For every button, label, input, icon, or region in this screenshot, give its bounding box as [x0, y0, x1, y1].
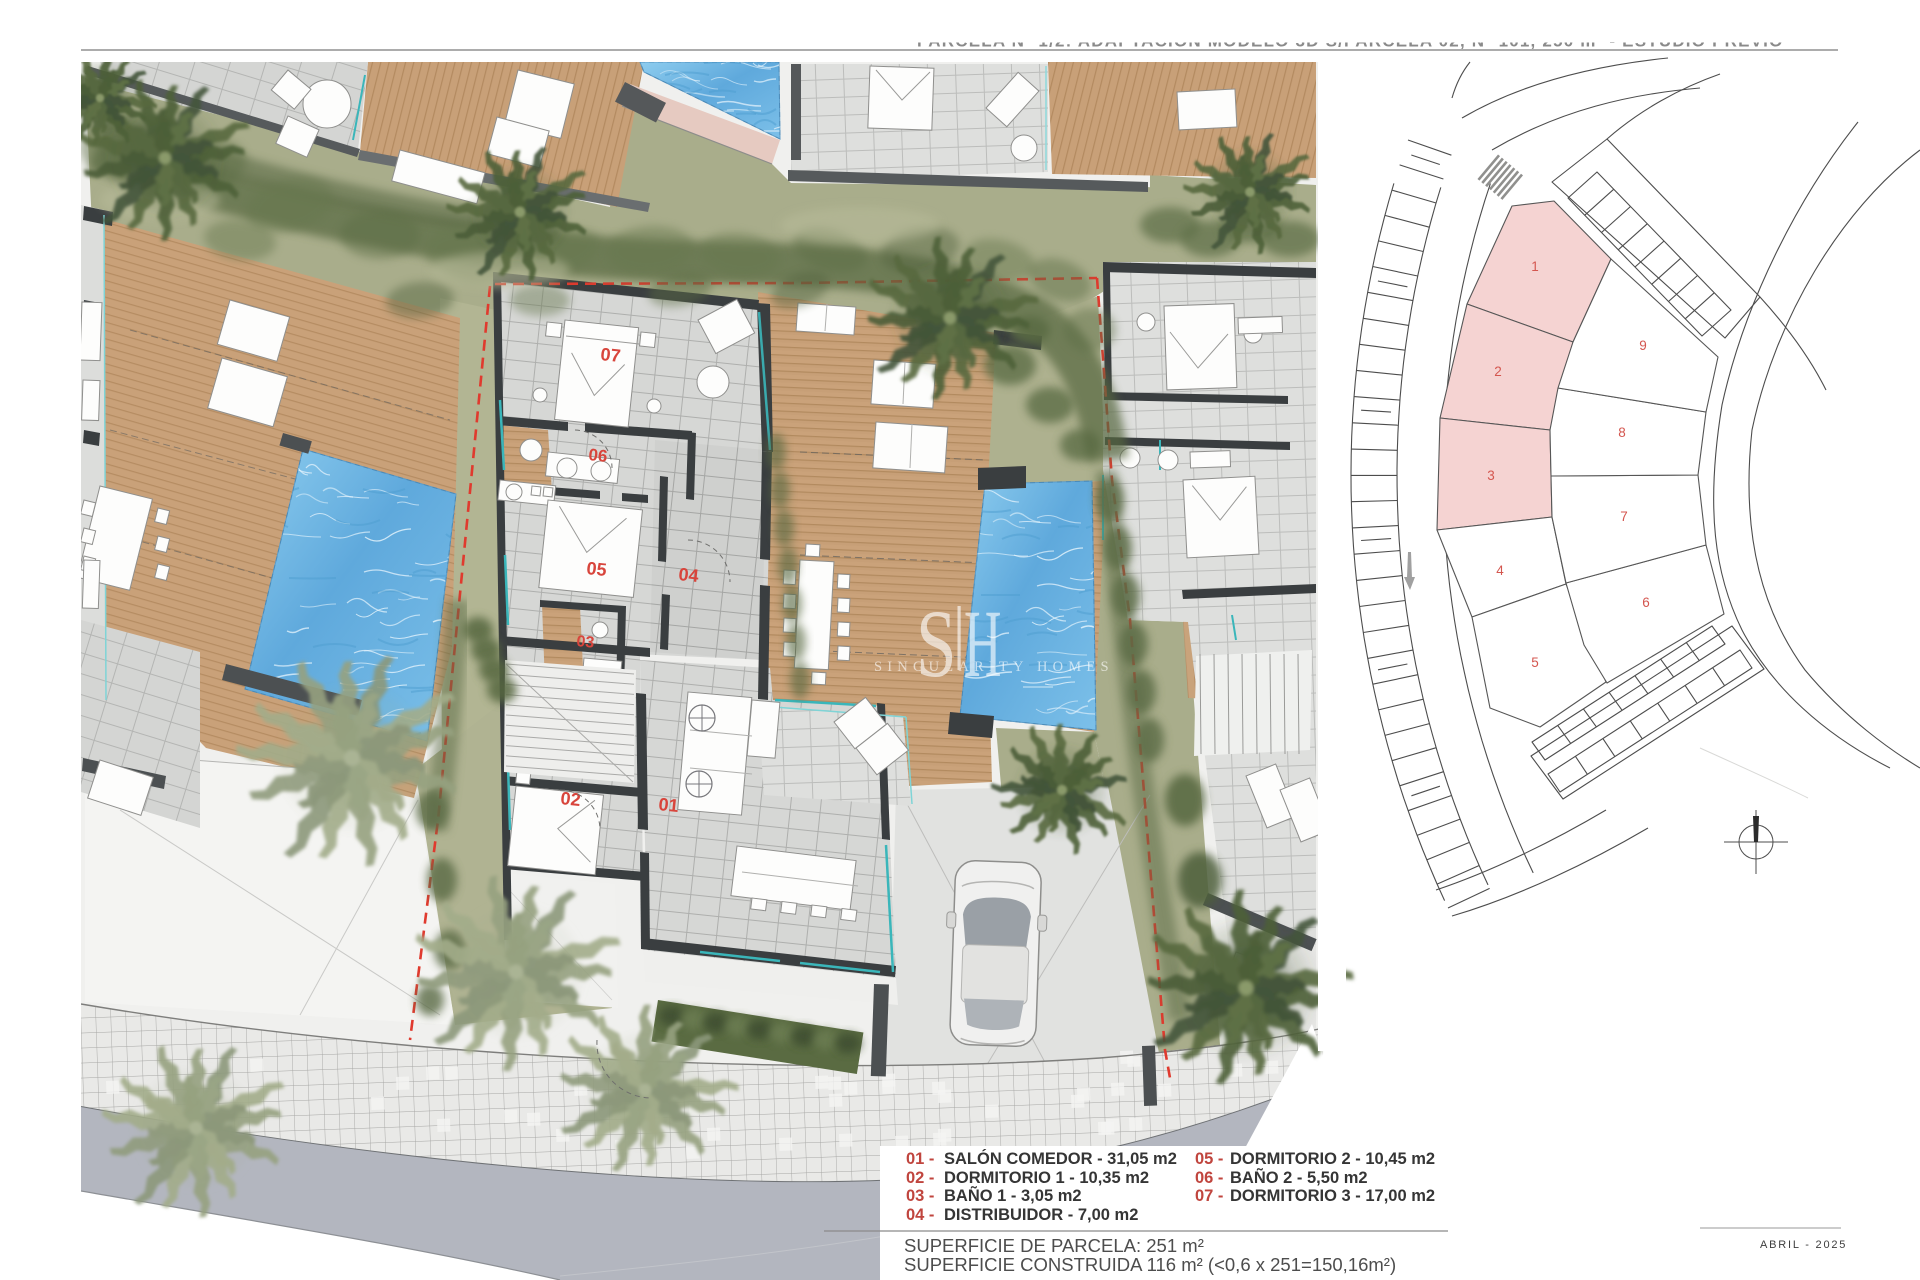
svg-text:3: 3	[1487, 468, 1495, 483]
svg-text:5: 5	[1531, 655, 1539, 670]
svg-text:04: 04	[678, 564, 700, 586]
svg-text:9: 9	[1639, 338, 1647, 353]
svg-text:DORMITORIO 2 - 10,45 m2: DORMITORIO 2 - 10,45 m2	[1230, 1150, 1435, 1168]
svg-text:06: 06	[588, 445, 609, 466]
svg-text:04 -: 04 -	[906, 1206, 934, 1224]
svg-text:1: 1	[1531, 259, 1539, 274]
svg-text:07: 07	[600, 344, 622, 366]
svg-text:06 -: 06 -	[1195, 1169, 1223, 1187]
svg-text:BAÑO 2 - 5,50 m2: BAÑO 2 - 5,50 m2	[1230, 1167, 1368, 1187]
svg-text:01 -: 01 -	[906, 1150, 934, 1168]
svg-text:01: 01	[658, 794, 680, 816]
svg-text:S: S	[916, 592, 957, 698]
svg-text:03: 03	[576, 633, 596, 652]
svg-text:H: H	[964, 590, 1001, 697]
svg-text:7: 7	[1620, 509, 1628, 524]
svg-text:DORMITORIO 3 - 17,00 m2: DORMITORIO 3 - 17,00 m2	[1230, 1187, 1435, 1205]
svg-text:03 -: 03 -	[906, 1187, 934, 1205]
svg-text:SUPERFICIE DE PARCELA: 251 m²: SUPERFICIE DE PARCELA: 251 m²	[904, 1235, 1204, 1256]
svg-text:02 -: 02 -	[906, 1169, 934, 1187]
svg-text:SINGULARITY HOMES: SINGULARITY HOMES	[874, 659, 1114, 675]
svg-text:SUPERFICIE CONSTRUIDA 116 m² (: SUPERFICIE CONSTRUIDA 116 m² (<0,6 x 251…	[904, 1254, 1396, 1275]
svg-text:4: 4	[1496, 563, 1504, 578]
svg-text:05: 05	[586, 558, 608, 580]
svg-text:SALÓN COMEDOR - 31,05 m2: SALÓN COMEDOR - 31,05 m2	[944, 1149, 1177, 1168]
svg-text:05 -: 05 -	[1195, 1150, 1223, 1168]
svg-text:DISTRIBUIDOR - 7,00 m2: DISTRIBUIDOR - 7,00 m2	[944, 1206, 1138, 1224]
svg-text:ABRIL - 2025: ABRIL - 2025	[1760, 1239, 1847, 1251]
svg-text:2: 2	[1494, 364, 1502, 379]
svg-text:8: 8	[1618, 425, 1626, 440]
svg-text:6: 6	[1642, 595, 1650, 610]
svg-text:07 -: 07 -	[1195, 1187, 1223, 1205]
svg-text:DORMITORIO 1 - 10,35 m2: DORMITORIO 1 - 10,35 m2	[944, 1169, 1149, 1187]
svg-text:BAÑO 1 - 3,05 m2: BAÑO 1 - 3,05 m2	[944, 1185, 1082, 1205]
